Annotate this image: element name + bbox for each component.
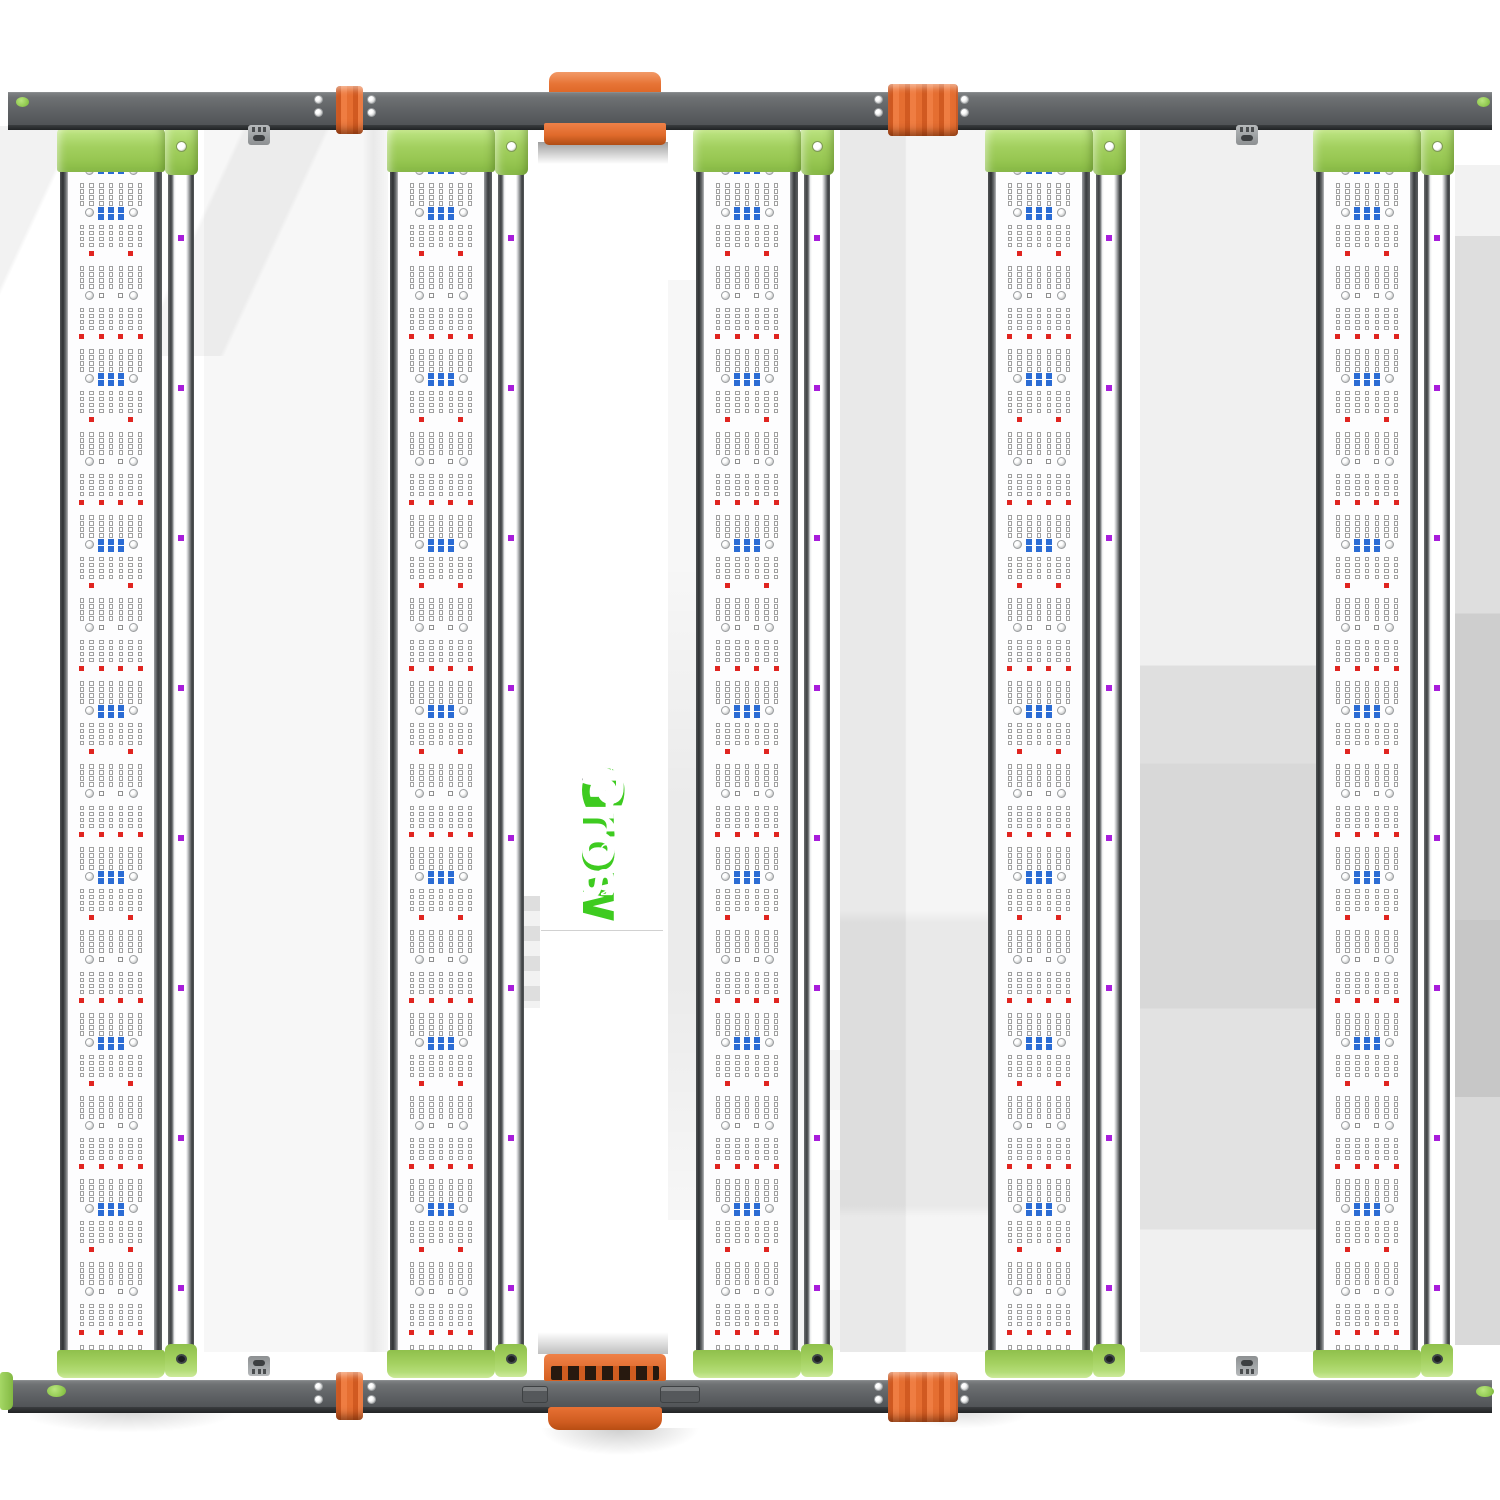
rail-clip-orange [336,86,363,134]
bracket-slot [252,1369,255,1374]
rail-screw [874,108,883,117]
rail-green-dot [47,1385,66,1397]
bracket-slot [263,1369,266,1374]
rail-screw [367,108,376,117]
bracket-slot [1240,127,1243,132]
bracket-slot [1246,1369,1249,1374]
rail-green-dot [1476,1386,1494,1397]
bracket-slot [1240,1369,1243,1374]
rail-clip-orange [888,84,958,136]
rail-green-dot [16,97,29,107]
rail-screw [314,108,323,117]
rail-screw [367,1395,376,1404]
rail-end-plate [0,1372,13,1410]
bracket-hole [253,135,265,141]
rail-screw [367,1382,376,1391]
rail-green-dot [1477,97,1490,107]
rail-screw [314,1382,323,1391]
bracket-slot [258,127,261,132]
bracket-slot [1251,127,1254,132]
rail-screw [960,1382,969,1391]
grow-light-fixture: Grow Pros S O L U T I O N S [0,0,1500,1500]
rail-screw [874,1382,883,1391]
hanger-bracket [1236,125,1258,145]
rail-clip-orange [336,1372,363,1420]
rail-tab [522,1386,548,1403]
bracket-slot [263,127,266,132]
bracket-slot [258,1369,261,1374]
rail-screw [314,1395,323,1404]
rail-screw [314,95,323,104]
hanger-bracket [1236,1356,1258,1376]
rail-screw [367,95,376,104]
bracket-slot [1246,127,1249,132]
bracket-hole [1241,1360,1253,1366]
bracket-hole [253,1360,265,1366]
rail-screw [874,1395,883,1404]
hanger-bracket [248,125,270,145]
rail-screw [960,108,969,117]
rail-screw [960,1395,969,1404]
rail-hardware-group [0,0,1500,1500]
rail-screw [960,95,969,104]
rail-clip-orange [888,1372,958,1422]
bracket-hole [1241,135,1253,141]
bracket-slot [252,127,255,132]
rail-tab [660,1386,700,1403]
rail-screw [874,95,883,104]
hanger-bracket [248,1356,270,1376]
bracket-slot [1251,1369,1254,1374]
